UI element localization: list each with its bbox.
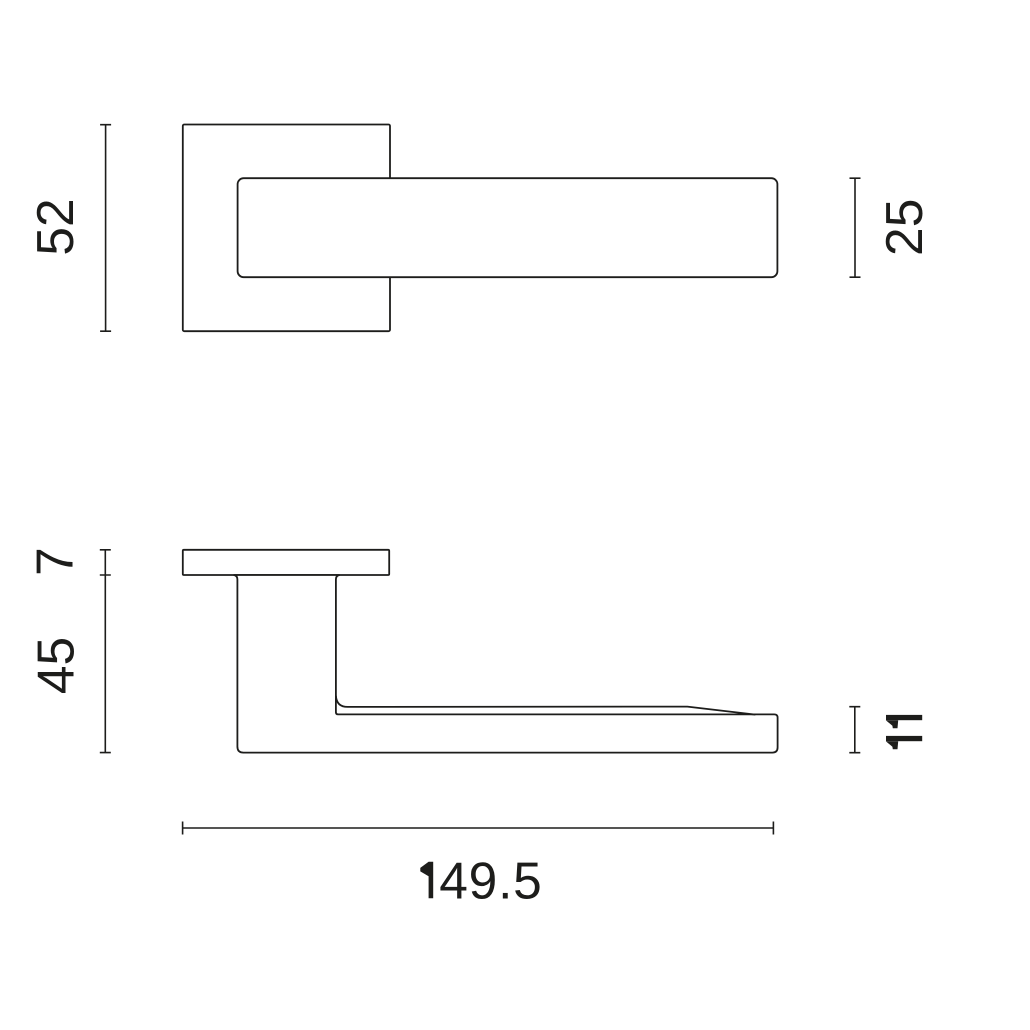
svg-text:25: 25	[875, 199, 933, 256]
svg-text:7: 7	[26, 547, 84, 576]
svg-text:45: 45	[27, 637, 85, 694]
svg-text:52: 52	[26, 198, 84, 255]
svg-text:49.5: 49.5	[439, 851, 542, 909]
